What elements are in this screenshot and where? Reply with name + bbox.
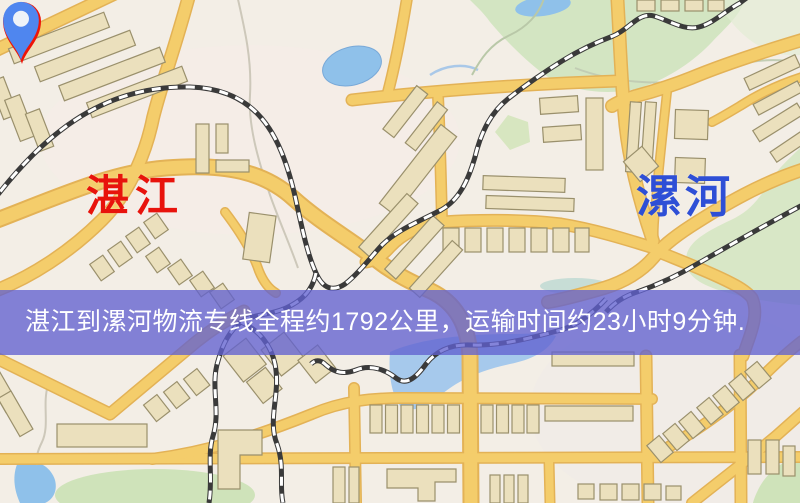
map-background: [0, 0, 800, 503]
route-info-banner: 湛江到漯河物流专线全程约1792公里，运输时间约23小时9分钟.: [0, 290, 800, 355]
destination-pin-icon[interactable]: [0, 0, 42, 62]
route-map[interactable]: 湛江 漯河 湛江到漯河物流专线全程约1792公里，运输时间约23小时9分钟.: [0, 0, 800, 503]
destination-pin-hole: [13, 11, 29, 27]
destination-pin-shape: [3, 2, 39, 60]
destination-city-label: 漯河: [636, 174, 734, 219]
route-info-text: 湛江到漯河物流专线全程约1792公里，运输时间约23小时9分钟.: [0, 290, 800, 355]
origin-city-label: 湛江: [86, 176, 184, 219]
